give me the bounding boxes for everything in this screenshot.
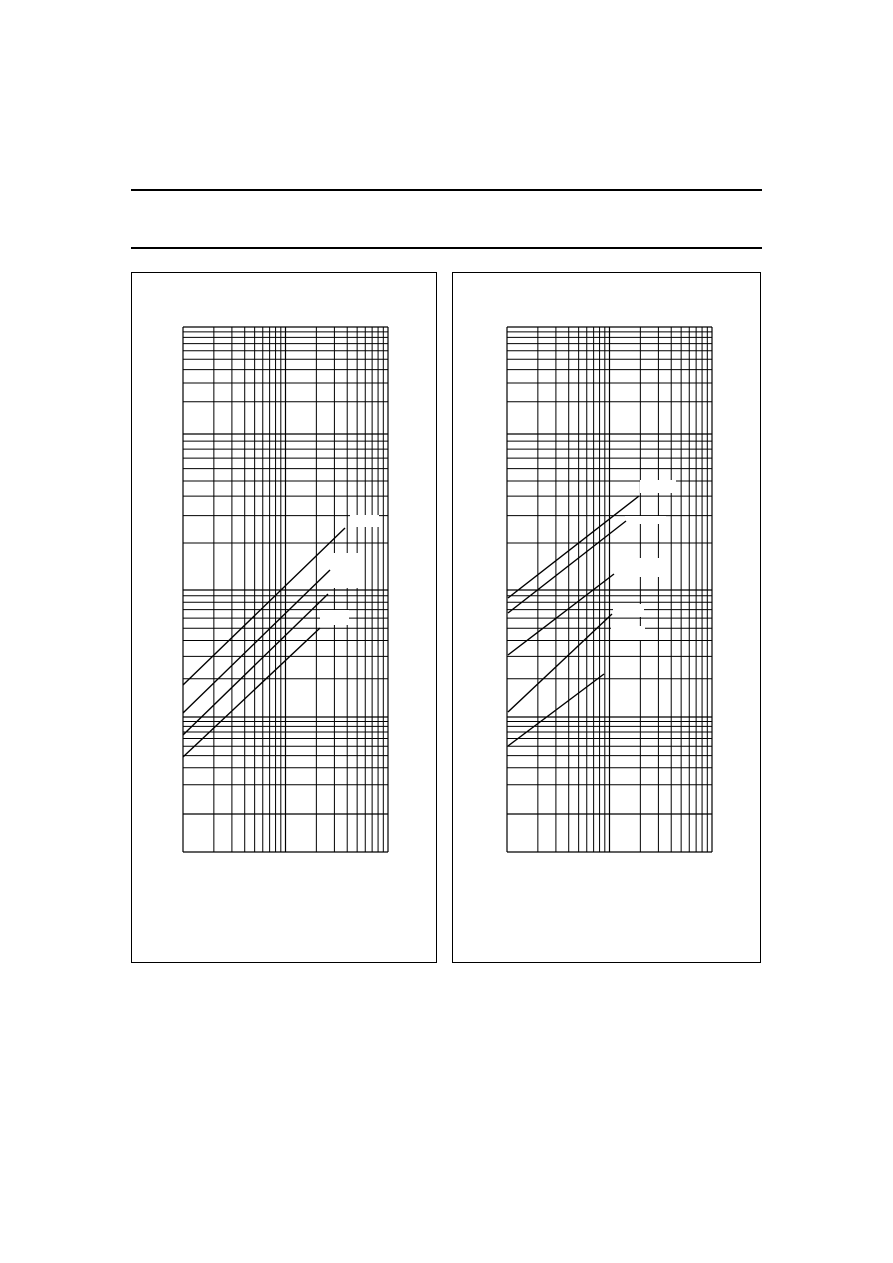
datasheet-page [0,0,893,1263]
figure-1-frame [131,272,437,963]
header-rule-bottom [131,247,762,249]
header-rule-top [131,189,762,191]
figure-2-frame [452,272,761,963]
